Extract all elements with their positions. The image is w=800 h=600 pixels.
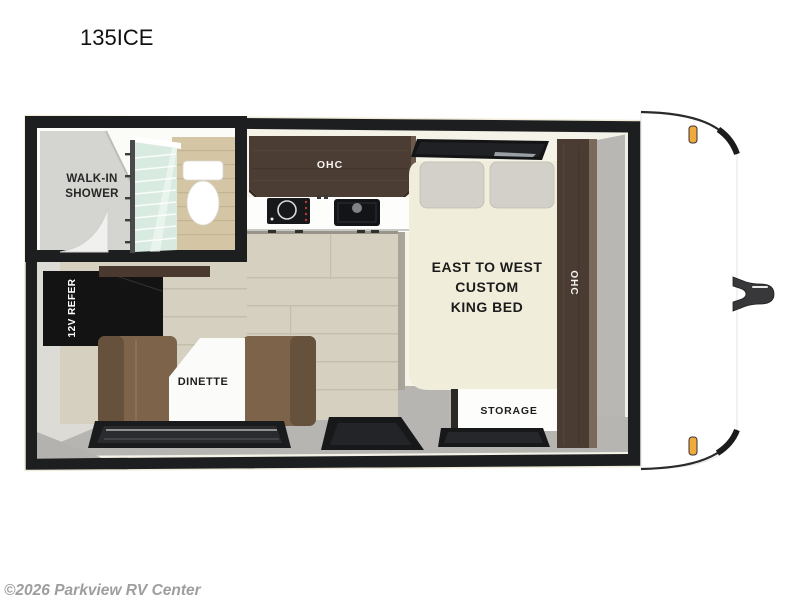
svg-text:135ICE: 135ICE [80, 25, 153, 50]
svg-text:OHC: OHC [568, 270, 579, 295]
svg-text:EAST TO WEST: EAST TO WEST [432, 259, 543, 275]
svg-text:KING BED: KING BED [451, 299, 523, 315]
svg-text:©2026 Parkview RV Center: ©2026 Parkview RV Center [4, 582, 202, 599]
svg-text:OHC: OHC [317, 159, 343, 171]
svg-text:12V REFER: 12V REFER [67, 278, 78, 337]
svg-text:WALK-IN: WALK-IN [66, 173, 117, 185]
svg-text:STORAGE: STORAGE [480, 405, 537, 417]
svg-text:CUSTOM: CUSTOM [455, 279, 518, 295]
svg-text:DINETTE: DINETTE [178, 376, 229, 388]
svg-text:SHOWER: SHOWER [65, 188, 119, 200]
